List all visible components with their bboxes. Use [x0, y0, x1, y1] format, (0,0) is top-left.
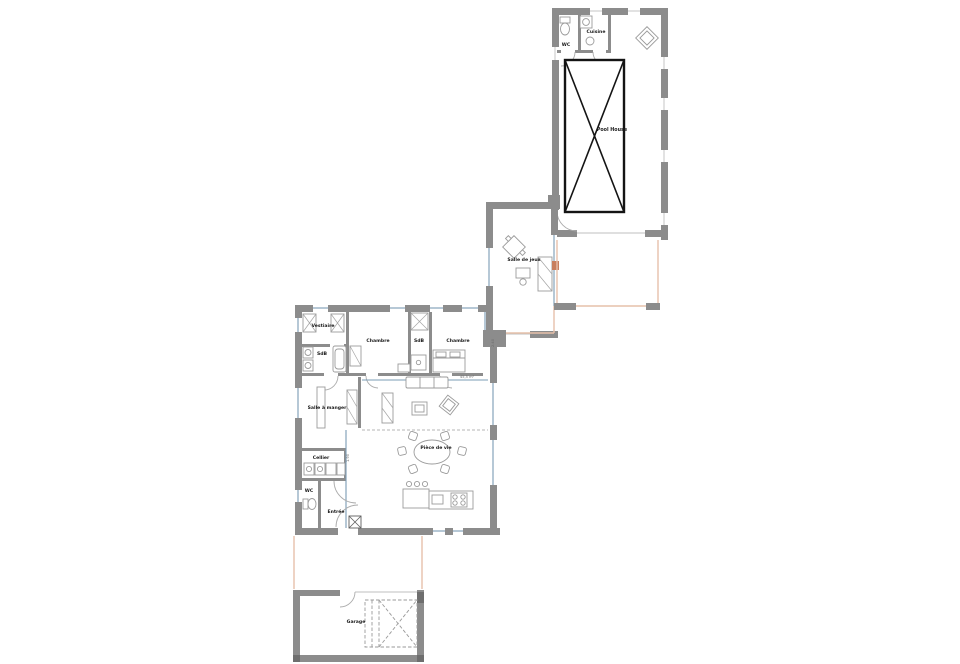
- entry-inner-door-arc: [334, 481, 356, 503]
- pantry-appliances: [304, 463, 345, 475]
- garage: Garage: [293, 590, 424, 662]
- toilet-icon: [560, 17, 570, 35]
- main-house: Vestiaire SdB Chambre SdB Chambre Salle …: [295, 305, 506, 535]
- dining-label: Salle à manger: [308, 404, 348, 411]
- game-room-label: Salle de jeux: [507, 257, 540, 263]
- kitchen-label: Cuisine: [587, 29, 606, 35]
- middle-terrace: [506, 240, 660, 333]
- bath2-label: SdB: [414, 338, 425, 344]
- pantry-label: Cellier: [313, 455, 330, 461]
- main-house-outer-walls: [295, 305, 506, 535]
- game-room: Salle de jeux: [486, 202, 559, 338]
- game-table-icon: [500, 233, 528, 261]
- south-terrace: [294, 536, 422, 589]
- garage-door-arc: [340, 592, 355, 607]
- living-area-note: 45,5 m²: [460, 375, 475, 379]
- desk-icon: [516, 268, 530, 285]
- floor-plan-page: WC Cuisine Pool House: [0, 0, 960, 664]
- stove-icon: [552, 261, 559, 270]
- bath2-closet-icon: [411, 313, 428, 330]
- sofa-icon: [406, 377, 448, 388]
- bedroom1-wardrobe-icon: [350, 346, 361, 366]
- pool-house-entry-door-arc: [557, 211, 577, 231]
- east-dim: 2.40: [491, 338, 495, 347]
- pool: [565, 60, 624, 212]
- washer-icons: [303, 347, 313, 371]
- wc-toilet-icon: [303, 499, 316, 510]
- doormat-icon: [349, 516, 361, 528]
- bathtub-icon: [333, 346, 346, 372]
- garage-walls: [293, 590, 424, 662]
- vestiaire-label: Vestiaire: [312, 323, 335, 329]
- garage-door-icon: [365, 600, 417, 647]
- entry-label: Entrée: [327, 508, 344, 515]
- floor-plan-drawing: WC Cuisine Pool House: [0, 0, 960, 664]
- pool-house: WC Cuisine Pool House: [548, 8, 668, 240]
- closet-icon: [303, 314, 344, 332]
- bedroom1-label: Chambre: [366, 338, 389, 344]
- shower-icon: [411, 355, 426, 370]
- corridor-dim: 1.90: [346, 453, 350, 462]
- coffee-table-icon: [412, 402, 427, 415]
- kitchen-island-icon: [403, 481, 429, 508]
- bath1-label: SdB: [317, 351, 328, 357]
- wc-label-house: WC: [305, 488, 314, 494]
- living-label: Pièce de vie: [420, 444, 451, 451]
- pool-house-label: Pool House: [597, 127, 628, 133]
- living-armchair-icon: [439, 395, 459, 415]
- wc-label: WC: [562, 42, 571, 48]
- dining-table-icon: [397, 431, 467, 474]
- sideboard-icon: [347, 390, 357, 424]
- kitchen-counter-icon: [429, 491, 473, 509]
- bedroom2-label: Chambre: [446, 338, 469, 344]
- garage-label: Garage: [347, 619, 366, 625]
- bed-icon: [433, 350, 465, 372]
- armchair-icon: [636, 27, 659, 50]
- bedroom1-desk-icon: [398, 364, 410, 372]
- shelf-unit-icon: [382, 393, 393, 423]
